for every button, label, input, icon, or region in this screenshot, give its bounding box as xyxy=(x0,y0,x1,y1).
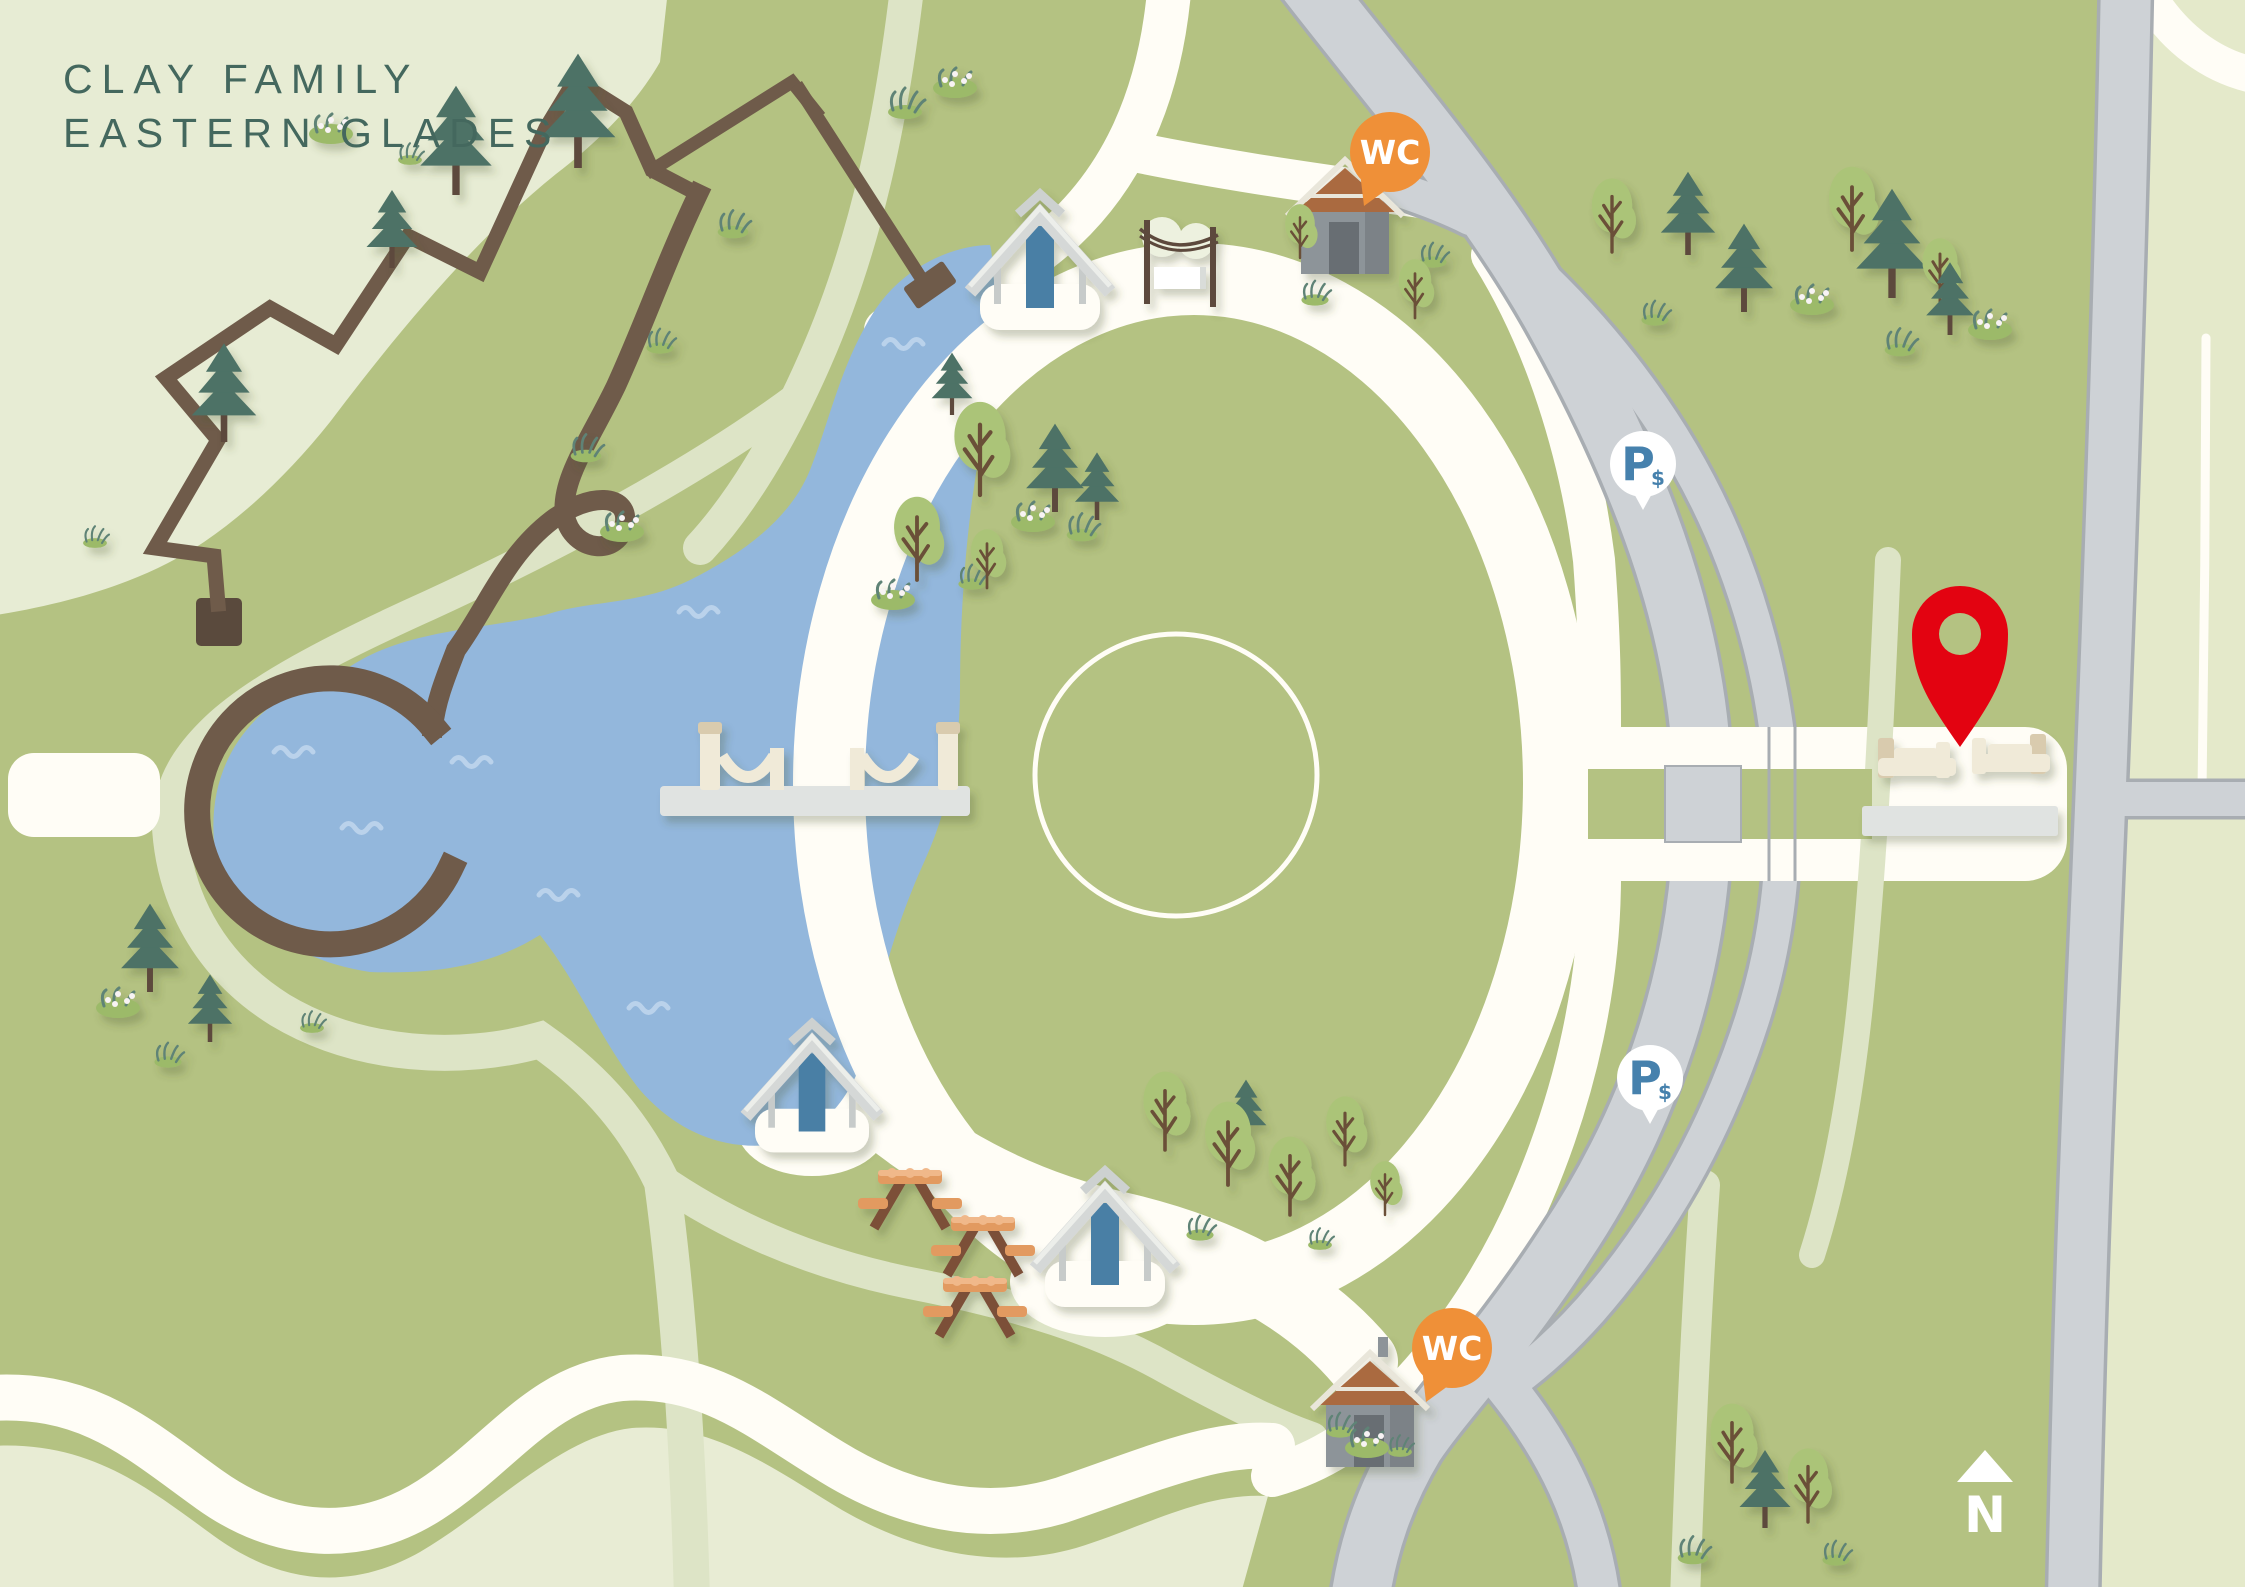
wc-marker-label: WC xyxy=(1422,1329,1483,1368)
flower-bush xyxy=(96,988,140,1018)
flower-bush xyxy=(1790,285,1834,315)
wc-marker-label: WC xyxy=(1360,133,1421,172)
flower-bush xyxy=(871,580,915,610)
flower-bush xyxy=(1968,310,2012,340)
north-label: N xyxy=(1964,1486,2006,1544)
parking-marker-symbol: $ xyxy=(1651,466,1665,490)
flower-bush xyxy=(1011,502,1055,532)
title-line-1: CLAY FAMILY xyxy=(63,52,560,106)
parking-marker-symbol: $ xyxy=(1658,1080,1672,1104)
title-line-2: EASTERN GLADES xyxy=(63,106,560,160)
flower-bush xyxy=(933,68,977,98)
park-map: WCWCP$P$N CLAY FAMILY EASTERN GLADES xyxy=(0,0,2245,1587)
park-map-canvas: WCWCP$P$N xyxy=(0,0,2245,1587)
flower-bush xyxy=(600,512,644,542)
parking-marker-label: P xyxy=(1628,1051,1662,1105)
page-title: CLAY FAMILY EASTERN GLADES xyxy=(63,52,560,160)
flower-bush xyxy=(1345,1428,1389,1458)
parking-marker-label: P xyxy=(1621,437,1655,491)
